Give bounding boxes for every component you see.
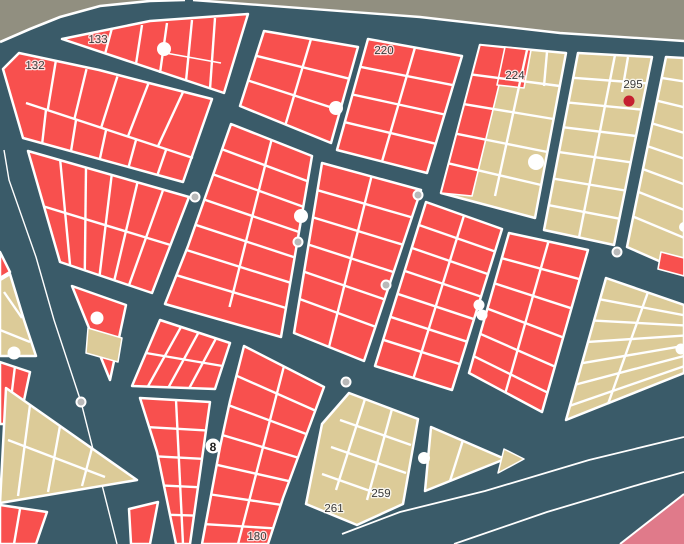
svg-text:220: 220: [374, 45, 393, 57]
svg-text:295: 295: [623, 79, 642, 91]
svg-text:8: 8: [210, 440, 217, 454]
svg-text:224: 224: [505, 70, 525, 82]
svg-text:133: 133: [88, 34, 107, 46]
svg-text:180: 180: [247, 531, 266, 543]
svg-text:261: 261: [324, 503, 343, 515]
svg-text:259: 259: [371, 488, 390, 500]
svg-text:132: 132: [25, 60, 44, 72]
